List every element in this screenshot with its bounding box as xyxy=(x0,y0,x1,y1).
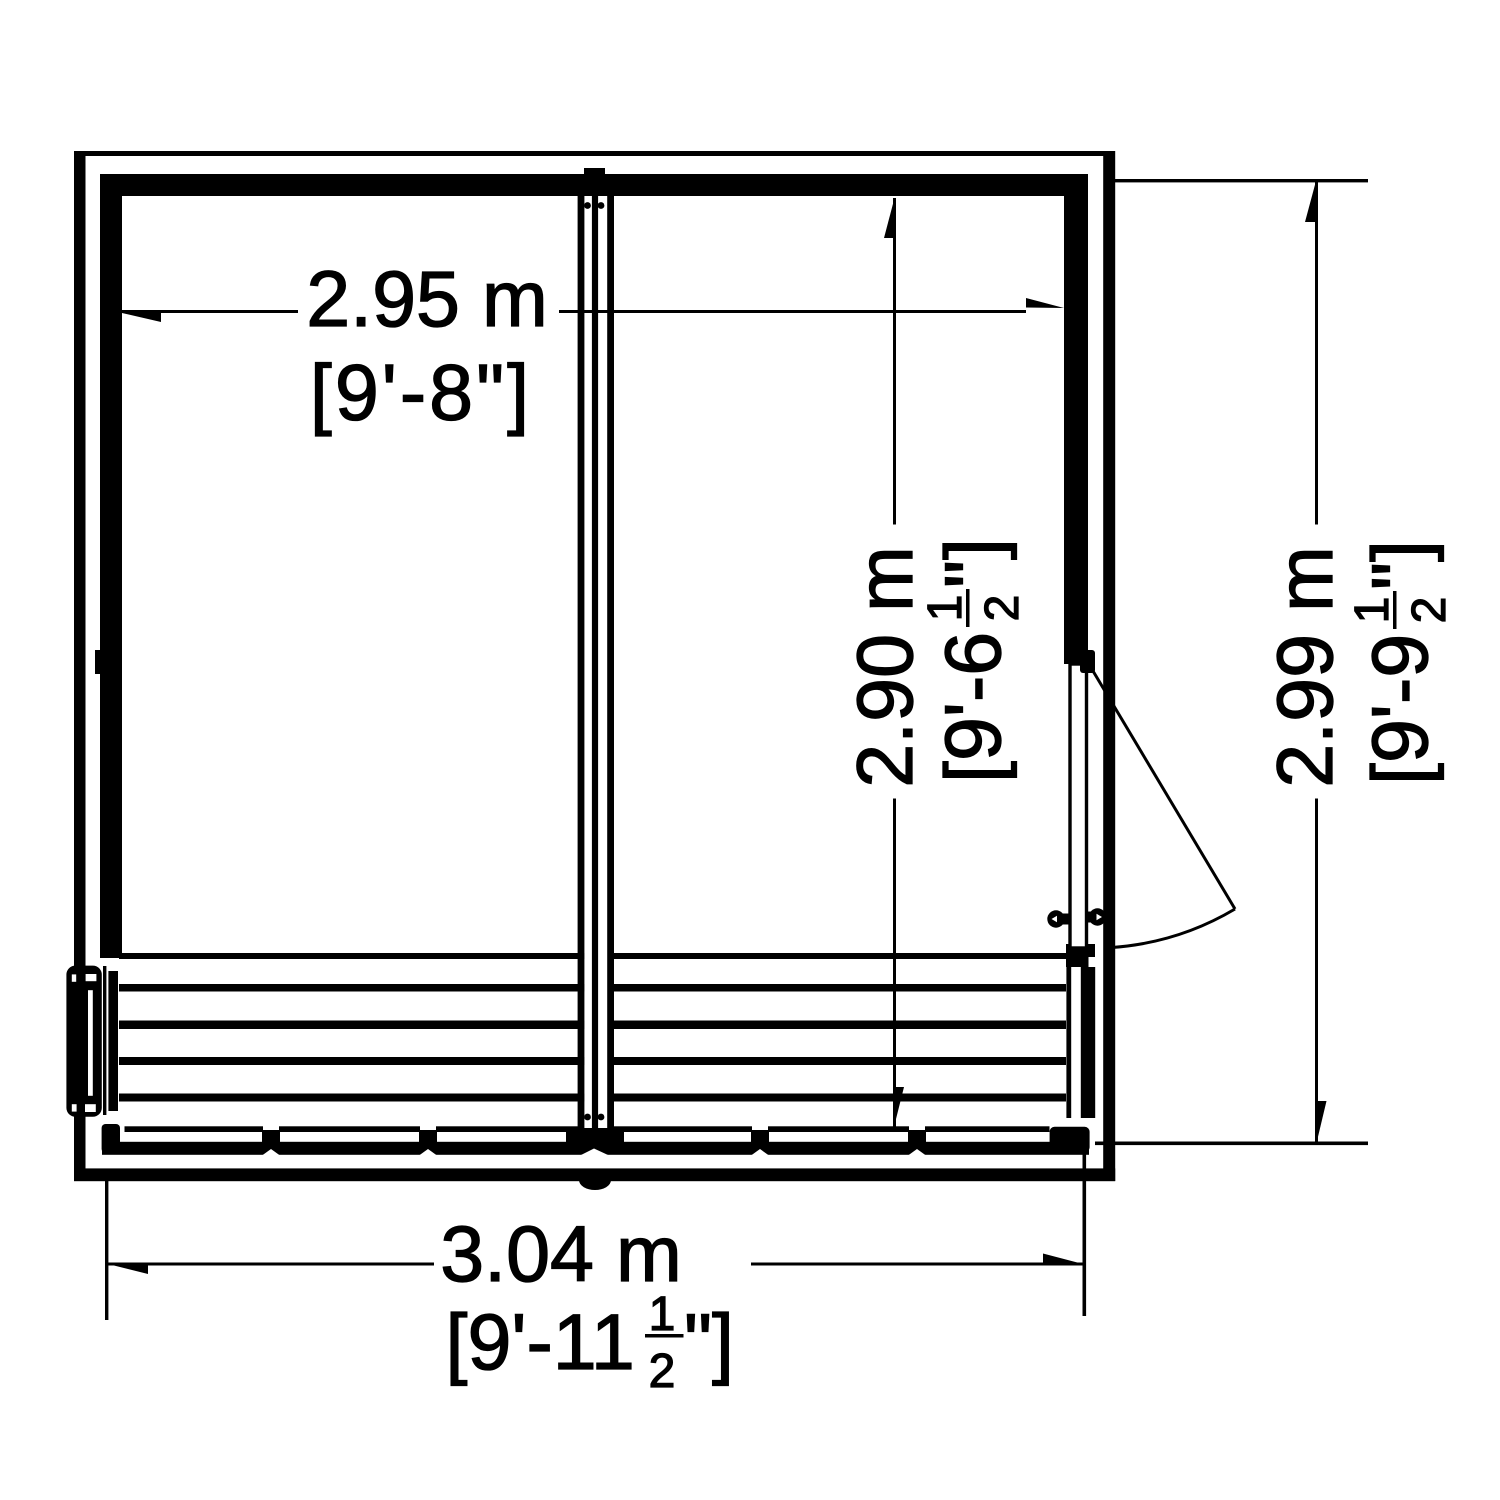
svg-text:[9'-6: [9'-6 xyxy=(928,632,1017,783)
svg-text:[9'-8"]: [9'-8"] xyxy=(310,348,532,437)
svg-text:3.04 m: 3.04 m xyxy=(440,1209,682,1298)
svg-text:"]: "] xyxy=(928,538,1017,588)
svg-text:1: 1 xyxy=(1346,597,1399,624)
svg-text:[9'-11: [9'-11 xyxy=(446,1297,635,1386)
svg-text:2: 2 xyxy=(649,1345,676,1398)
svg-text:2.99 m: 2.99 m xyxy=(1260,546,1349,788)
svg-text:2: 2 xyxy=(976,595,1029,622)
svg-text:[9'-9: [9'-9 xyxy=(1355,634,1444,785)
svg-text:"]: "] xyxy=(684,1297,734,1386)
svg-text:2: 2 xyxy=(1403,597,1456,624)
svg-text:2.90 m: 2.90 m xyxy=(840,546,929,788)
svg-text:1: 1 xyxy=(649,1288,676,1341)
svg-text:1: 1 xyxy=(919,595,972,622)
svg-text:2.95 m: 2.95 m xyxy=(306,254,548,343)
svg-text:"]: "] xyxy=(1355,540,1444,590)
